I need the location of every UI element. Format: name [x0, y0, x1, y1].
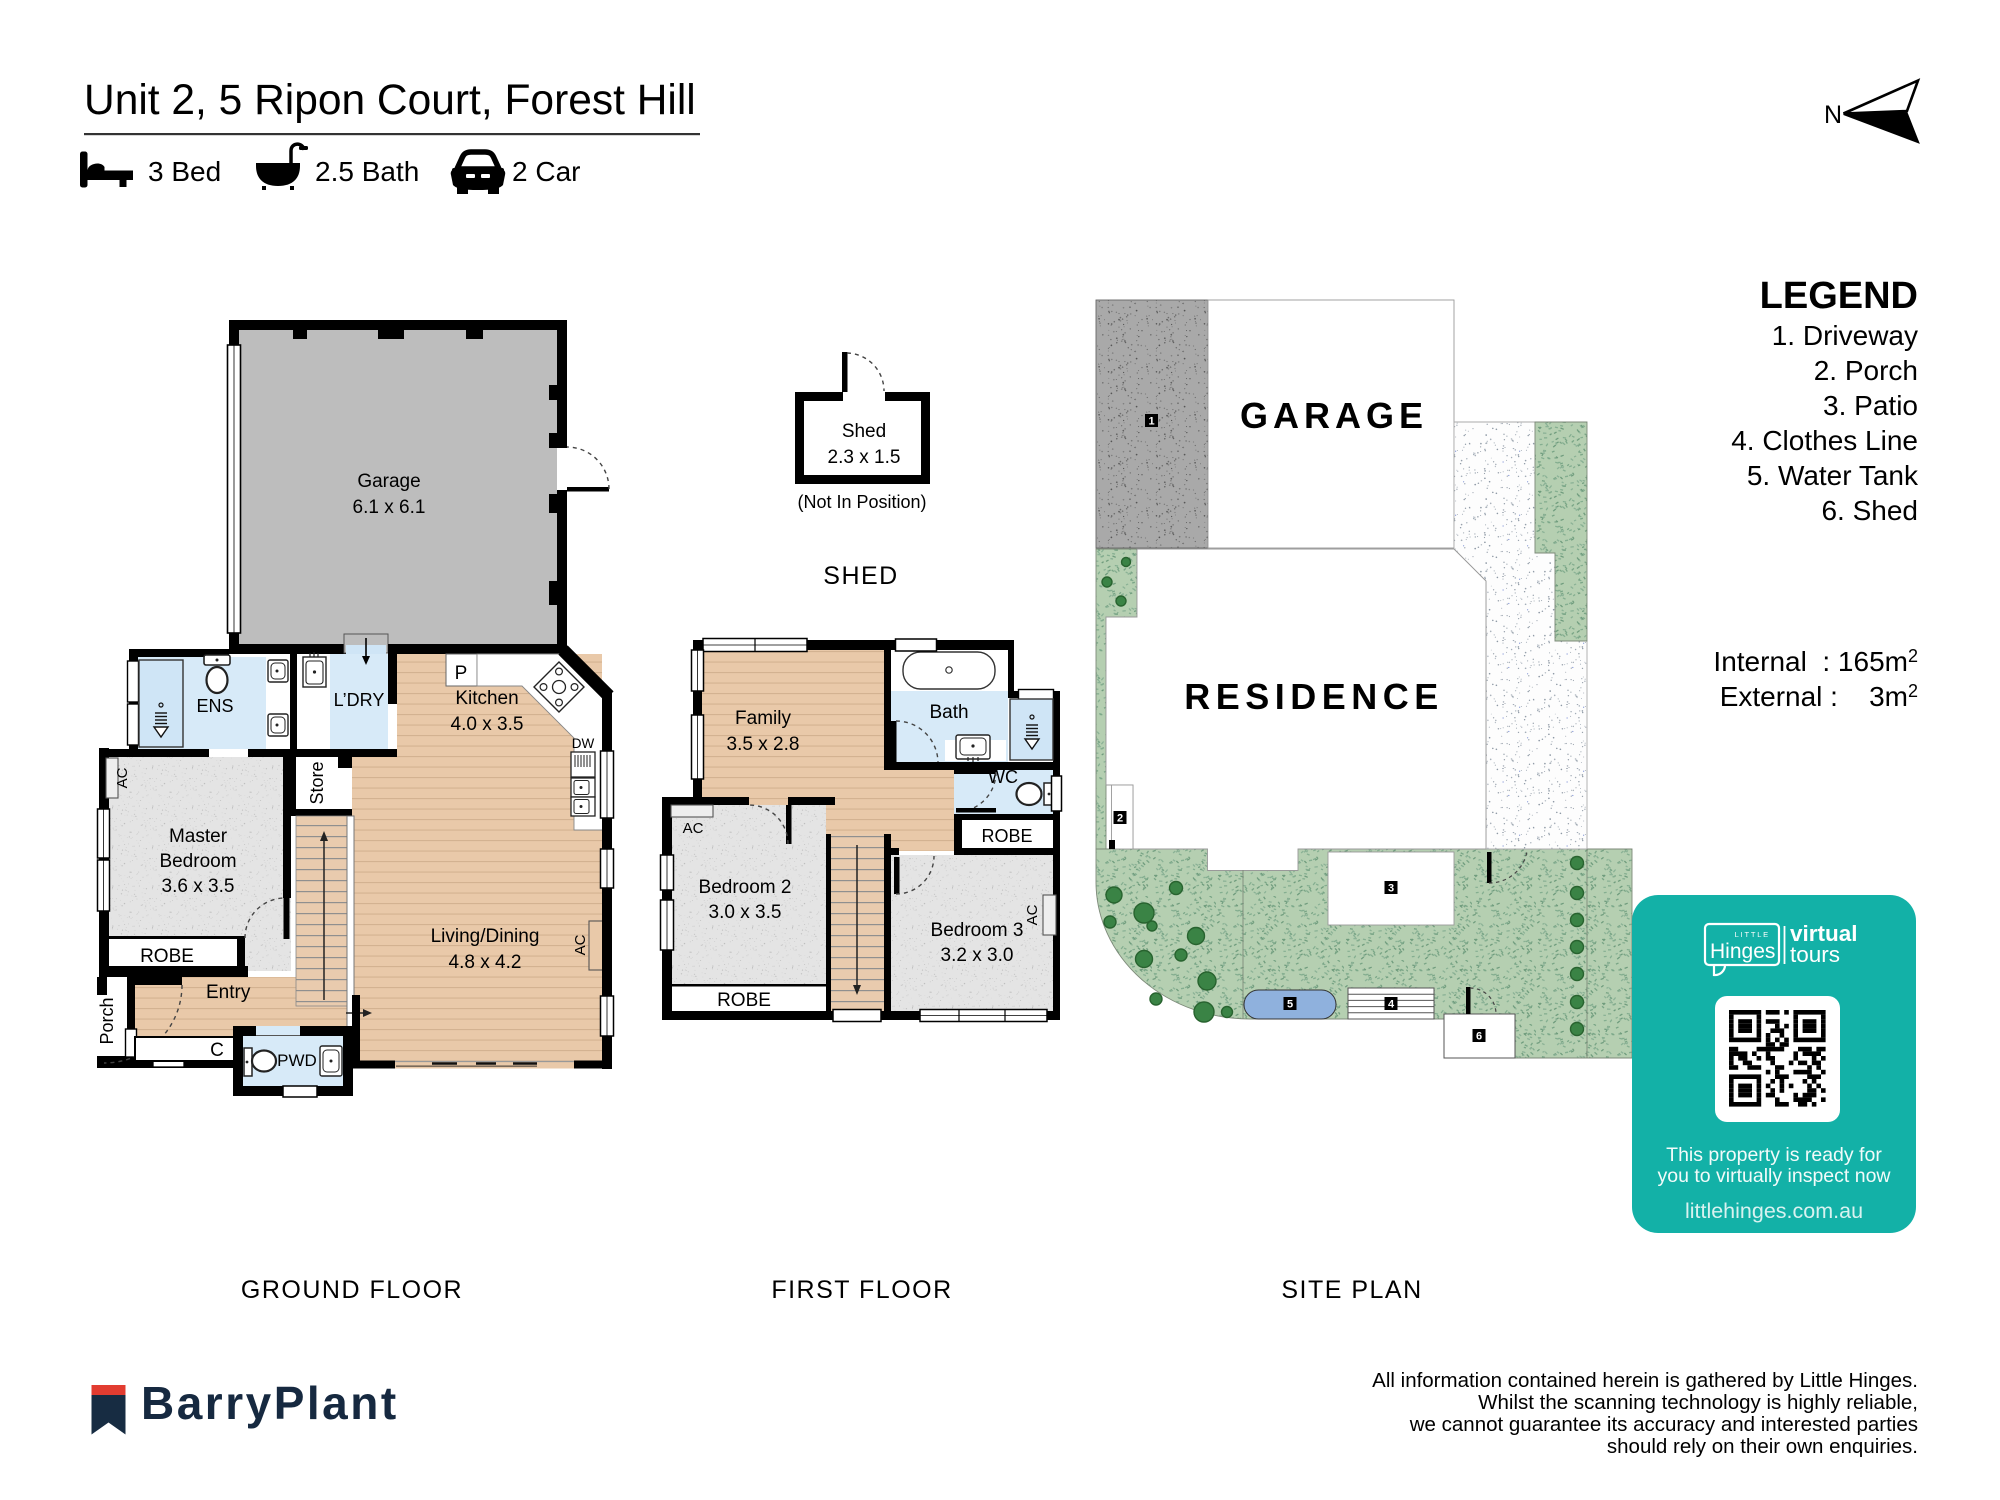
svg-text:5. Water Tank: 5. Water Tank	[1747, 460, 1919, 491]
svg-text:2.5 Bath: 2.5 Bath	[315, 156, 419, 187]
svg-text:ROBE: ROBE	[717, 990, 771, 1011]
svg-text:PWD: PWD	[277, 1051, 317, 1070]
svg-text:Porch: Porch	[97, 997, 117, 1044]
svg-text:LEGEND: LEGEND	[1760, 275, 1918, 317]
svg-text:RESIDENCE: RESIDENCE	[1184, 676, 1444, 717]
svg-text:Bedroom 2: Bedroom 2	[699, 877, 792, 898]
svg-text:Store: Store	[307, 761, 327, 804]
svg-text:Entry: Entry	[206, 982, 251, 1003]
svg-text:tours: tours	[1790, 942, 1840, 967]
svg-text:Bath: Bath	[929, 702, 968, 723]
svg-text:AC: AC	[1024, 904, 1041, 925]
svg-text:P: P	[455, 663, 468, 684]
svg-text:2. Porch: 2. Porch	[1814, 355, 1918, 386]
svg-text:you to virtually inspect now: you to virtually inspect now	[1657, 1165, 1891, 1187]
svg-text:L’DRY: L’DRY	[334, 690, 385, 710]
svg-text:3.0 x 3.5: 3.0 x 3.5	[709, 902, 782, 923]
svg-text:AC: AC	[572, 934, 589, 955]
svg-text:4: 4	[1388, 999, 1395, 1011]
svg-text:Unit 2, 5 Ripon Court, Forest: Unit 2, 5 Ripon Court, Forest Hill	[84, 77, 696, 124]
svg-text:DW: DW	[572, 736, 595, 751]
svg-text:Bedroom 3: Bedroom 3	[931, 920, 1024, 941]
svg-text:1: 1	[1148, 416, 1154, 428]
svg-text:2 Car: 2 Car	[512, 156, 580, 187]
svg-text:Bedroom: Bedroom	[159, 851, 236, 872]
svg-text:C: C	[210, 1040, 224, 1061]
svg-text:AC: AC	[683, 820, 704, 837]
svg-text:6.1 x 6.1: 6.1 x 6.1	[353, 497, 426, 518]
svg-text:This property is ready for: This property is ready for	[1666, 1144, 1882, 1166]
svg-text:2: 2	[1117, 813, 1123, 825]
svg-text:3. Patio: 3. Patio	[1823, 390, 1918, 421]
svg-text:GARAGE: GARAGE	[1240, 395, 1428, 436]
svg-text:1. Driveway: 1. Driveway	[1772, 320, 1918, 351]
svg-text:FIRST FLOOR: FIRST FLOOR	[771, 1276, 952, 1304]
svg-text:Internal : 165m2: Internal : 165m2	[1713, 646, 1918, 677]
svg-text:BarryPlant: BarryPlant	[141, 1377, 399, 1429]
svg-text:Garage: Garage	[357, 471, 420, 492]
svg-text:6. Shed: 6. Shed	[1821, 495, 1918, 526]
svg-text:should rely on their own enqui: should rely on their own enquiries.	[1607, 1435, 1918, 1458]
svg-text:ROBE: ROBE	[981, 826, 1032, 846]
svg-text:6: 6	[1476, 1031, 1482, 1043]
svg-text:4. Clothes Line: 4. Clothes Line	[1731, 425, 1918, 456]
svg-text:SHED: SHED	[823, 562, 898, 590]
svg-text:(Not In Position): (Not In Position)	[797, 492, 926, 512]
svg-text:Living/Dining: Living/Dining	[431, 926, 540, 947]
svg-text:4.8 x 4.2: 4.8 x 4.2	[449, 952, 522, 973]
svg-text:3.6 x 3.5: 3.6 x 3.5	[162, 876, 235, 897]
svg-text:ROBE: ROBE	[140, 946, 194, 967]
svg-text:SITE PLAN: SITE PLAN	[1281, 1276, 1422, 1304]
svg-text:Kitchen: Kitchen	[455, 688, 518, 709]
svg-text:3 Bed: 3 Bed	[148, 156, 221, 187]
svg-text:N: N	[1824, 101, 1842, 129]
svg-text:GROUND FLOOR: GROUND FLOOR	[241, 1276, 463, 1304]
svg-text:Family: Family	[735, 708, 791, 729]
svg-text:LITTLE: LITTLE	[1735, 930, 1770, 939]
svg-text:4.0 x 3.5: 4.0 x 3.5	[451, 714, 524, 735]
svg-text:ENS: ENS	[196, 696, 233, 716]
svg-text:Shed: Shed	[842, 421, 886, 442]
svg-text:2.3 x 1.5: 2.3 x 1.5	[828, 447, 901, 468]
svg-text:All information contained here: All information contained herein is gath…	[1372, 1369, 1918, 1392]
svg-text:5: 5	[1287, 999, 1293, 1011]
svg-text:Master: Master	[169, 826, 228, 847]
svg-text:Whilst the scanning technology: Whilst the scanning technology is highly…	[1478, 1391, 1918, 1414]
svg-text:littlehinges.com.au: littlehinges.com.au	[1685, 1199, 1863, 1223]
svg-text:AC: AC	[114, 767, 131, 788]
svg-text:Hinges: Hinges	[1710, 940, 1775, 963]
svg-text:3.5 x 2.8: 3.5 x 2.8	[727, 734, 800, 755]
svg-text:we cannot guarantee its accura: we cannot guarantee its accuracy and int…	[1409, 1413, 1918, 1436]
svg-text:External : 3m2: External : 3m2	[1720, 681, 1918, 712]
svg-text:3: 3	[1388, 883, 1394, 895]
svg-text:3.2 x 3.0: 3.2 x 3.0	[941, 945, 1014, 966]
